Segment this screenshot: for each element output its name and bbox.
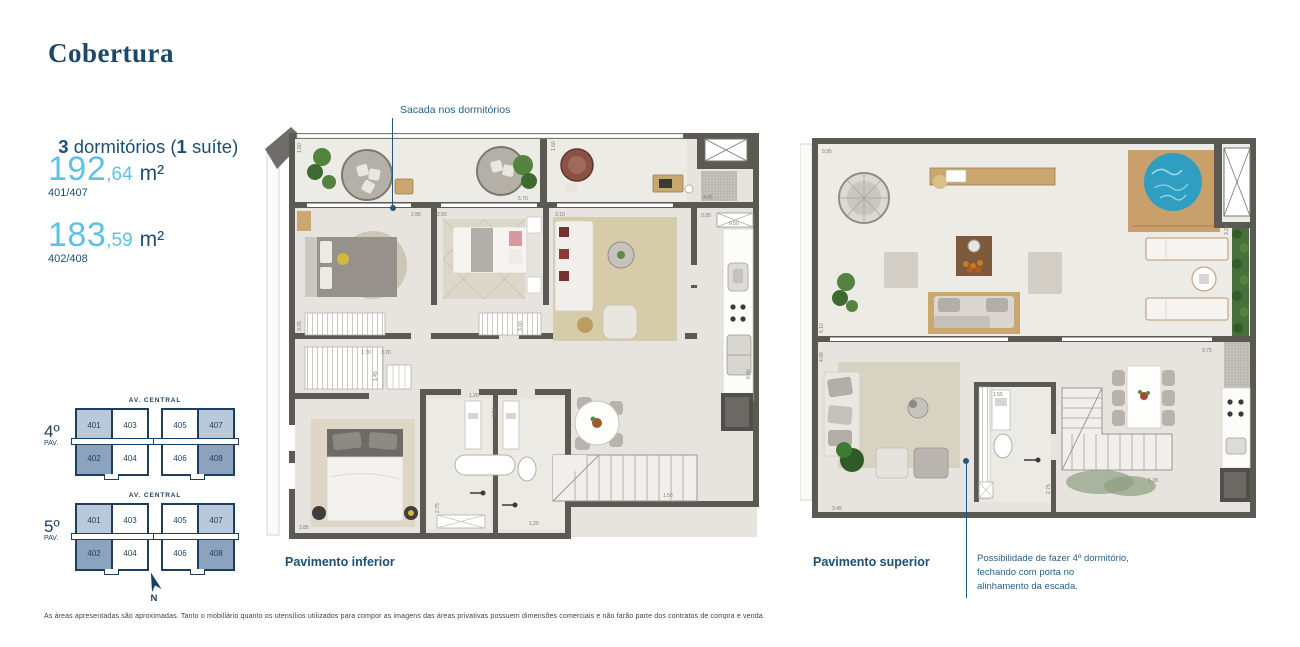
dim: 2.85 bbox=[299, 525, 309, 531]
unit-cell-408: 408 bbox=[198, 537, 234, 570]
area-unit: m² bbox=[140, 228, 165, 251]
dim: 2.75 bbox=[435, 503, 441, 513]
dim: 3.10 bbox=[492, 407, 498, 417]
notch bbox=[104, 474, 119, 480]
annotation-line-3: alinhamento da escada. bbox=[977, 580, 1129, 594]
corridor bbox=[71, 438, 157, 445]
annotation-sacada: Sacada nos dormitórios bbox=[400, 104, 510, 116]
notch bbox=[190, 569, 205, 575]
keyplan-4-pav: AV. CENTRAL 4º PAV. 401 403 402 404 405 … bbox=[40, 397, 250, 489]
floor-plan-inferior: 1.60 5.70 2.85 2.55 3.10 4.05 0.95 0.50 … bbox=[265, 125, 760, 545]
unit-cell-408: 408 bbox=[198, 442, 234, 475]
area-dec: ,64 bbox=[106, 164, 132, 185]
corridor bbox=[153, 438, 239, 445]
tv-room bbox=[824, 362, 960, 478]
plan-edge bbox=[267, 151, 279, 535]
area-dec: ,59 bbox=[106, 230, 132, 251]
dim: 0.50 bbox=[729, 221, 739, 227]
dim: 3.70 bbox=[381, 350, 391, 356]
unit-cell-402: 402 bbox=[76, 537, 112, 570]
floor-label: 4º PAV. bbox=[44, 423, 60, 447]
dim: 2.75 bbox=[1046, 484, 1052, 494]
compass-north-icon: N bbox=[142, 570, 166, 604]
dim: 1.70 bbox=[361, 350, 371, 356]
annotation-line-2: fechando com porta no bbox=[977, 566, 1129, 580]
notch bbox=[190, 474, 205, 480]
dim: 1.20 bbox=[469, 393, 479, 399]
corridor bbox=[71, 533, 157, 540]
area-int: 183 bbox=[48, 216, 106, 254]
stairs bbox=[553, 455, 697, 501]
area-int: 192 bbox=[48, 150, 106, 188]
area-value: 183,59m² bbox=[48, 216, 164, 255]
dim: 1.20 bbox=[529, 521, 539, 527]
master-suite bbox=[311, 419, 418, 527]
keyplan-right-block: 405 407 406 408 bbox=[161, 503, 235, 571]
plan-label-inferior: Pavimento inferior bbox=[285, 555, 395, 569]
dim: 3.45 bbox=[832, 506, 842, 512]
keyplan-grid: 401 403 402 404 405 407 406 408 bbox=[75, 503, 235, 571]
dim: 3.00 bbox=[518, 321, 524, 331]
page-title: Cobertura bbox=[48, 38, 174, 69]
dim: 1.45 bbox=[373, 371, 379, 381]
keyplan-right-block: 405 407 406 408 bbox=[161, 408, 235, 476]
dim: 0.95 bbox=[701, 213, 711, 219]
floor-suffix: PAV. bbox=[44, 440, 60, 447]
dim: 9.95 bbox=[822, 149, 832, 155]
keyplan-left-block: 401 403 402 404 bbox=[75, 503, 149, 571]
unit-cell-404: 404 bbox=[112, 442, 148, 475]
street-label: AV. CENTRAL bbox=[75, 397, 235, 404]
hedge bbox=[1232, 226, 1249, 344]
keyplan-left-block: 401 403 402 404 bbox=[75, 408, 149, 476]
unit-cell-406: 406 bbox=[162, 442, 198, 475]
plan-label-superior: Pavimento superior bbox=[813, 555, 930, 569]
dining-upper bbox=[1112, 366, 1175, 428]
area-block-1: 192,64m² 401/407 bbox=[48, 150, 164, 199]
dim: 1.56 bbox=[663, 493, 673, 499]
dim: 1.60 bbox=[551, 141, 557, 151]
disclaimer-text: As áreas apresentadas são aproximadas. T… bbox=[44, 613, 765, 620]
dim: 2.85 bbox=[411, 212, 421, 218]
floor-label: 5º PAV. bbox=[44, 518, 60, 542]
living-room bbox=[553, 217, 677, 341]
dim: 4.05 bbox=[703, 195, 713, 201]
leader-dot-sacada bbox=[390, 205, 396, 211]
dim: 9.75 bbox=[1202, 348, 1212, 354]
dim: 4.08 bbox=[819, 352, 825, 362]
dim: 1.55 bbox=[993, 392, 1003, 398]
floor-number: 5º bbox=[44, 518, 60, 535]
leader-line-sacada bbox=[392, 118, 393, 206]
bathroom-upper bbox=[979, 387, 1051, 502]
annotation-dormitorio: Possibilidade de fazer 4º dormitório, fe… bbox=[977, 552, 1129, 594]
unit-cell-402: 402 bbox=[76, 442, 112, 475]
dim: 5.10 bbox=[819, 323, 825, 333]
floor-number: 4º bbox=[44, 423, 60, 440]
dim: 1.60 bbox=[297, 143, 303, 153]
dim: 5.70 bbox=[518, 196, 528, 202]
dining bbox=[575, 397, 623, 450]
balcony-railing bbox=[297, 134, 683, 138]
leader-line-dormitorio bbox=[966, 464, 967, 598]
compass-label: N bbox=[151, 593, 158, 604]
dim: 3.10 bbox=[555, 212, 565, 218]
suite-count: 1 bbox=[177, 136, 187, 157]
corridor bbox=[153, 533, 239, 540]
dim: 6.40 bbox=[746, 369, 752, 379]
dim: 3.20 bbox=[1224, 225, 1230, 235]
unit-cell-406: 406 bbox=[162, 537, 198, 570]
keyplan-grid: 401 403 402 404 405 407 406 408 bbox=[75, 408, 235, 476]
floor-plan-superior: 9.95 5.10 3.20 4.08 9.75 1.55 2.75 3.45 … bbox=[800, 130, 1262, 520]
unit-cell-404: 404 bbox=[112, 537, 148, 570]
area-unit: m² bbox=[140, 162, 165, 185]
plan-edge bbox=[800, 144, 812, 500]
street-label: AV. CENTRAL bbox=[75, 492, 235, 499]
annotation-line-1: Possibilidade de fazer 4º dormitório, bbox=[977, 552, 1129, 566]
dim: 1.28 bbox=[1148, 478, 1158, 484]
suite-label: suíte) bbox=[187, 136, 238, 157]
dim: 2.55 bbox=[437, 212, 447, 218]
area-block-2: 183,59m² 402/408 bbox=[48, 216, 164, 265]
notch bbox=[104, 569, 119, 575]
kitchen-upper bbox=[1220, 342, 1250, 502]
floor-suffix: PAV. bbox=[44, 535, 60, 542]
area-value: 192,64m² bbox=[48, 150, 164, 189]
dim: 3.05 bbox=[297, 321, 303, 331]
